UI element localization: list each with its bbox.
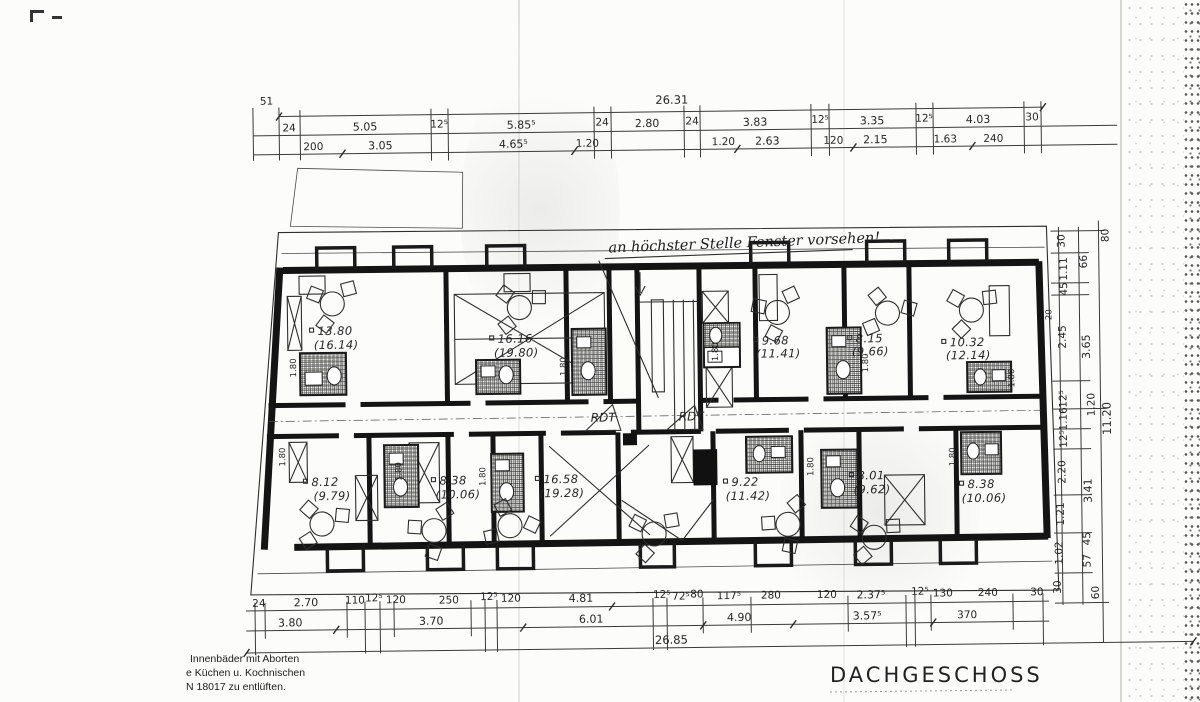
dim-label: 20 <box>1044 309 1054 320</box>
corridor-walls <box>267 396 1043 436</box>
room-area-total: (10.06) <box>962 491 1007 506</box>
chimney-blocks <box>623 432 718 486</box>
scanned-floor-plan-sheet: 51 26.31 24 <box>0 0 1200 702</box>
dim-label: 80 <box>690 588 704 600</box>
dim-label: 24 <box>685 115 699 127</box>
dim-label: 2.15 <box>863 133 888 146</box>
dim-label: 200 <box>303 141 323 153</box>
dim-label: 12⁵ <box>653 589 671 601</box>
dim-label: 57 <box>1081 554 1093 568</box>
dim-label: 1.63 <box>934 133 958 145</box>
room-area-total: (10.06) <box>436 487 481 502</box>
dim-label: 12⁵ <box>1058 430 1070 448</box>
dim-label: 1.20 <box>576 138 600 150</box>
bath-width: 1.80 <box>806 457 816 476</box>
dim-label: 6.01 <box>579 613 604 626</box>
note-text: an höchster Stelle Fenster vorsehen! <box>608 230 880 256</box>
dim-label: 45 <box>1081 532 1093 546</box>
dim-label: 1.16 <box>1058 407 1070 431</box>
room-area-total: (9.62) <box>854 482 891 496</box>
corridor-doors: RDT RDT <box>586 403 706 430</box>
dimension-chain-top: 51 26.31 24 <box>253 85 1118 163</box>
dim-label: 80 <box>1099 229 1111 243</box>
dim-label: 12⁵ <box>430 118 448 130</box>
room-area: 16.58 <box>543 472 578 486</box>
dim-label: 1.21 <box>1055 502 1067 526</box>
dim-label: 3.05 <box>368 139 393 152</box>
bath-width: 1.80 <box>948 447 958 466</box>
dim-label: 24 <box>595 116 609 128</box>
table-and-chairs <box>755 493 823 562</box>
dim-label: 5.85⁵ <box>507 118 536 131</box>
dim-label: 1.11 <box>1058 257 1070 281</box>
dim-total-right: 11.20 <box>1100 402 1114 435</box>
dim-label: 2.37⁵ <box>856 588 885 601</box>
dim-label: 120 <box>501 593 521 605</box>
bath-width: 1.80 <box>289 358 299 377</box>
dim-label: 3.35 <box>860 114 885 127</box>
table-and-chairs <box>403 501 467 566</box>
room-area: 8.38 <box>967 477 994 491</box>
bathroom <box>967 362 1011 393</box>
bath-width: 1.80 <box>394 462 404 481</box>
dim-label: 24 <box>282 122 296 134</box>
dim-label: 1.20 <box>1085 393 1097 417</box>
dim-label: 1.02 <box>1053 541 1065 565</box>
room-area: 9.22 <box>731 475 758 489</box>
dim-label: 3.65 <box>1080 334 1093 359</box>
furniture <box>285 268 1013 579</box>
dim-label: 3.57⁵ <box>853 609 882 622</box>
dim-label: 30 <box>1025 111 1039 123</box>
dim-label: 130 <box>933 587 953 599</box>
dim-label: 3.70 <box>419 615 444 628</box>
bath-width: 1.80 <box>559 357 569 376</box>
bathroom <box>572 329 607 395</box>
dim-total-top: 26.31 <box>655 93 688 107</box>
dim-label: 4.65⁵ <box>499 137 528 150</box>
table-and-chairs <box>626 509 680 565</box>
drawing-title-block: DACHGESCHOSS <box>830 663 1043 692</box>
floor-plan-drawing: 51 26.31 24 <box>0 0 1200 702</box>
bath-width: 1.80 <box>278 447 288 466</box>
dim-label: 24 <box>252 598 266 610</box>
room-area: 13.80 <box>318 324 353 338</box>
dim-label: 12⁵ <box>811 114 829 126</box>
legend-line: N 18017 zu entlüften. <box>186 681 286 693</box>
dim-label: 2.80 <box>635 117 660 130</box>
dim-total-bottom: 26.85 <box>655 633 688 647</box>
dim-label: 12⁵ <box>1057 390 1069 408</box>
bathroom <box>704 323 741 367</box>
dim-label: 4.90 <box>727 611 752 624</box>
bathroom <box>746 436 792 473</box>
room-area-total: (19.28) <box>540 486 585 501</box>
legend-block: Innenbäder mit Aborten e Küchen u. Kochn… <box>186 653 305 693</box>
dim-label: 12⁵ <box>915 113 933 125</box>
dim-label: 12⁵ <box>911 586 929 598</box>
room-area: 8.01 <box>857 468 884 482</box>
stairwell <box>635 265 701 432</box>
bath-width: 1.80 <box>1007 369 1017 388</box>
dim-label: 30 <box>1055 234 1067 248</box>
legend-line: Innenbäder mit Aborten <box>190 653 299 665</box>
room-area: 8.38 <box>439 473 466 487</box>
dim-label: 250 <box>439 594 459 606</box>
dim-label: 110 <box>345 595 365 607</box>
room-area-total: (19.80) <box>494 345 539 360</box>
bath-width: 1.80 <box>478 467 488 486</box>
dim-label: 120 <box>823 135 843 147</box>
dim-label: 240 <box>978 587 998 599</box>
corridor-label: RDT <box>679 409 706 423</box>
bathroom <box>961 432 1002 474</box>
dim-label: 51 <box>260 96 274 108</box>
dim-label: 72⁵ <box>672 591 690 603</box>
room-area-total: (11.42) <box>726 489 771 504</box>
corridor-label: RDT <box>591 410 618 424</box>
room-area: 8.12 <box>311 475 338 489</box>
dim-label: 30 <box>1030 586 1044 598</box>
dim-label: 2.70 <box>294 596 319 609</box>
room-area-total: (9.79) <box>314 489 351 503</box>
dim-label: 30 <box>1052 580 1064 594</box>
dim-label: 60 <box>1090 586 1102 600</box>
room-area-total: (16.14) <box>314 338 359 353</box>
page-title: DACHGESCHOSS <box>830 663 1043 687</box>
dim-label: 3.80 <box>278 616 303 629</box>
dim-label: 1.20 <box>712 136 736 148</box>
dim-label: 3.41 <box>1081 478 1094 503</box>
dim-label: 4.81 <box>569 592 594 605</box>
dim-label: 4.03 <box>966 113 991 126</box>
room-area-total: (11.41) <box>756 346 801 361</box>
dim-label: 120 <box>817 589 837 601</box>
dim-label: 280 <box>761 589 781 601</box>
dim-label: 2.45 <box>1057 325 1069 349</box>
dim-label: 12⁵ <box>365 592 383 604</box>
dim-label: 2.63 <box>755 134 780 147</box>
dim-label: 12⁵ <box>480 591 498 603</box>
dim-label: 5.05 <box>353 120 378 133</box>
dim-label: 117⁵ <box>717 590 741 602</box>
dim-label: 370 <box>957 609 977 621</box>
dim-label: 45 <box>1058 282 1070 296</box>
bathroom <box>300 353 347 396</box>
bathroom <box>821 449 858 507</box>
bath-width: 1.80 <box>711 342 721 361</box>
dim-label: 240 <box>983 133 1003 145</box>
legend-line: e Küchen u. Kochnischen <box>186 667 305 679</box>
corridor-axis-line <box>269 410 1041 421</box>
bathroom <box>476 360 520 395</box>
room-area-total: (12.14) <box>946 348 991 363</box>
room-area: 16.16 <box>498 331 533 345</box>
roof-annex-outline <box>290 166 464 230</box>
dim-label: 66 <box>1078 255 1090 269</box>
dim-label: 120 <box>386 594 406 606</box>
plan-group: 51 26.31 24 <box>237 84 1197 657</box>
bath-width: 1.80 <box>861 353 871 372</box>
dimension-chain-right: 30 1.11 45 2.45 12⁵ 1.16 12⁵ 2.20 1.21 1… <box>1043 220 1116 643</box>
bathrooms <box>300 320 1013 515</box>
dim-label: 2.20 <box>1056 460 1068 484</box>
dim-label: 3.83 <box>743 116 768 129</box>
